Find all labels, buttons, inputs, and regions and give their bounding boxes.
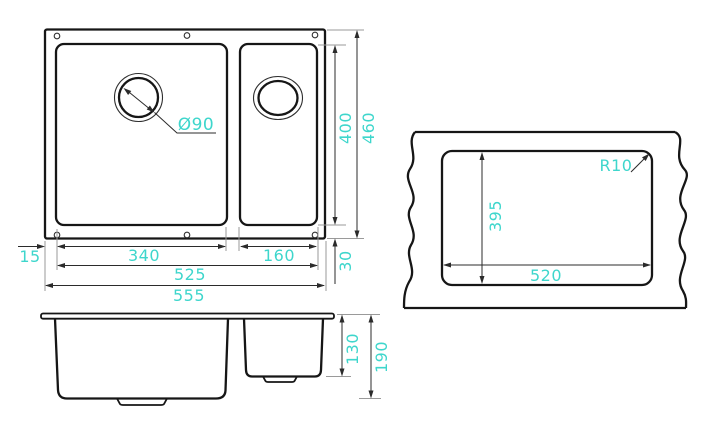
top-view: Ø90 15 340 160 [18,30,378,306]
countertop-break-line-left [404,132,415,308]
dim-cutout-height: 395 [480,152,506,284]
mounting-hole [54,33,60,39]
drawing-canvas: Ø90 15 340 160 [0,0,720,439]
bowl-left-profile [55,319,228,399]
drain-right-inner-circle [259,81,298,115]
rim-bottom-label: 30 [336,250,355,271]
drain-right-outer-circle [254,77,303,120]
sink-technical-drawing: Ø90 15 340 160 [0,0,720,439]
dim-corner-radius: R10 [600,154,650,176]
outer-width-label: 555 [173,286,205,305]
rim-left-label: 15 [19,247,40,266]
mounting-hole [312,32,318,38]
cutout-height-label: 395 [486,200,505,232]
inner-width-label: 525 [174,265,206,284]
dim-bowl-right-width: 160 [240,244,317,265]
rim-profile [41,314,334,319]
dim-inner-height: 400 [333,45,356,225]
dim-drain-diameter: Ø90 [124,88,217,135]
cutout-view: 395 520 R10 [404,132,687,308]
countertop-break-line-right [675,132,687,308]
bowl-right-outline [240,44,317,225]
drain-left-outer-circle [115,74,163,122]
dim-cutout-width: 520 [443,263,651,286]
inner-height-label: 400 [336,112,355,144]
dim-outer-height: 460 [355,30,379,239]
outer-height-label: 460 [359,112,378,144]
mounting-hole [184,33,190,39]
dim-inner-width: 525 [57,263,318,284]
bowl-right-depth-label: 130 [343,333,362,365]
drain-diameter-label: Ø90 [178,115,215,135]
bowl-right-profile [244,319,323,377]
bowl-left-width-label: 340 [128,246,160,265]
dim-outer-width: 555 [45,283,325,305]
dim-bowl-left-width: 340 [57,244,226,265]
bowl-left-depth-label: 190 [372,341,391,373]
side-view: 130 190 [41,314,391,406]
mounting-hole [184,232,190,238]
bowl-right-width-label: 160 [263,246,295,265]
dim-bowl-right-depth: 130 [340,315,363,377]
dim-bowl-left-depth: 190 [369,315,392,399]
dim-rim-bottom: 30 [333,239,356,285]
cutout-width-label: 520 [530,266,562,285]
mounting-hole [312,232,318,238]
dim-rim-left: 15 [18,244,45,266]
corner-radius-label: R10 [600,156,633,175]
